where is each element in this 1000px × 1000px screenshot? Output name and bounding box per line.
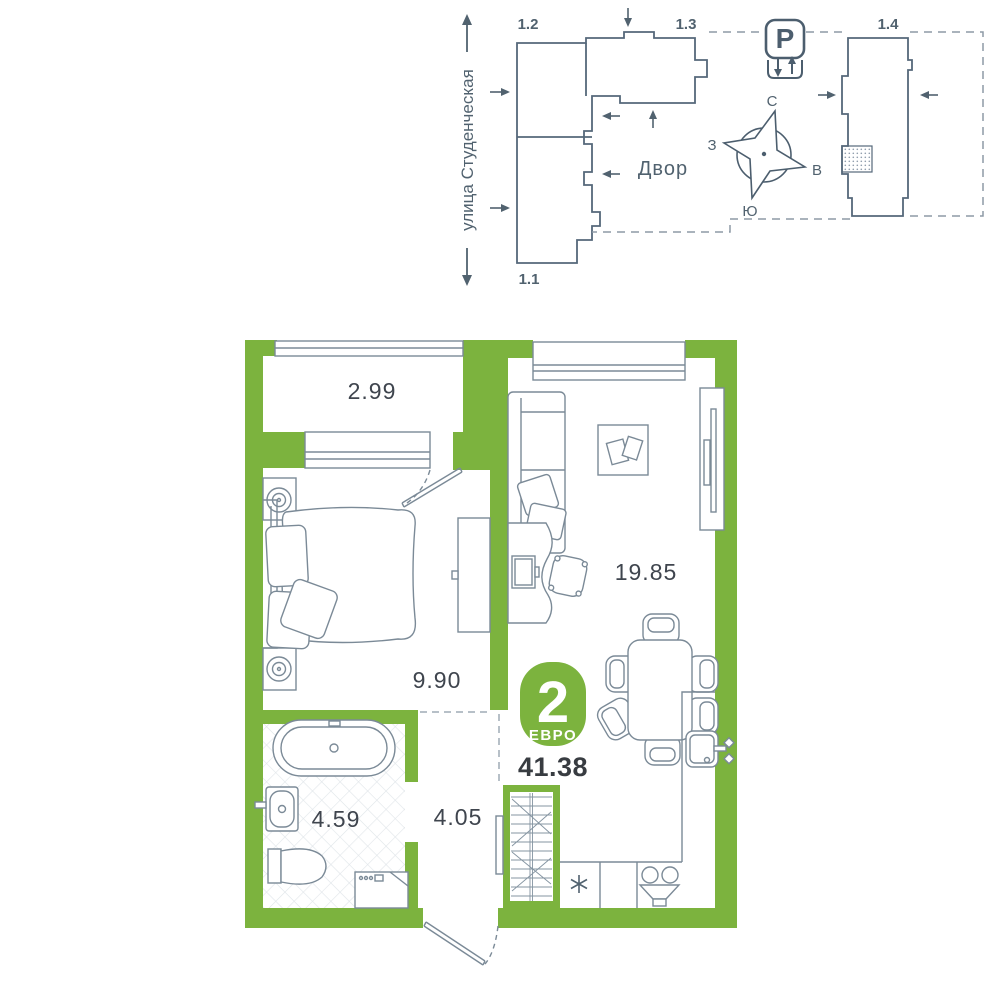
street-arrow-down-icon [462, 275, 472, 286]
street-arrow-up-icon [462, 14, 472, 25]
apartment-location-hatch [842, 146, 872, 172]
bathroom-area-label: 4.59 [312, 806, 361, 832]
closet-interior [510, 792, 553, 901]
compass-south-label: Ю [742, 203, 757, 220]
balcony-area-label: 2.99 [348, 378, 397, 404]
room-count-badge: 2 ЕВРО [520, 662, 586, 746]
courtyard-label: Двор [638, 158, 688, 180]
site-plan: улица Студенческая [458, 8, 983, 288]
desk-icon [508, 523, 552, 623]
floorplan-page: улица Студенческая [0, 0, 1000, 1000]
tv-unit-icon [700, 388, 724, 530]
compass-east-label: В [812, 162, 822, 179]
wardrobe-icon [452, 518, 490, 632]
building-1-3-label: 1.3 [676, 16, 697, 33]
building-1-2-label: 1.2 [518, 16, 539, 33]
fridge-snowflake-icon [571, 875, 587, 893]
toilet-icon [268, 849, 326, 884]
bedroom-furniture [263, 478, 490, 690]
entry-door [424, 922, 498, 965]
total-area-label: 41.38 [518, 752, 588, 782]
living-window [533, 342, 685, 380]
bedroom-window-sill [305, 432, 430, 468]
desk-chair-icon [547, 554, 588, 598]
building-a-outline [517, 32, 707, 263]
apartment-plan: 2.99 9.90 19.85 4.59 4.05 2 ЕВРО 41.38 [245, 340, 737, 965]
nightstand-lamp-icon [263, 648, 296, 690]
openings-dashed [420, 712, 499, 784]
closet-door-panel [496, 816, 503, 874]
building-1-4-label: 1.4 [878, 16, 900, 33]
badge-rooms-label: 2 [537, 670, 569, 735]
compass-west-label: З [707, 137, 716, 154]
tv-icon [711, 409, 716, 512]
washing-machine-icon [355, 872, 408, 908]
compass-north-label: С [767, 93, 778, 110]
hallway-area-label: 4.05 [434, 804, 483, 830]
bed-icon [263, 500, 415, 649]
badge-type-label: ЕВРО [529, 727, 577, 744]
plan-svg: улица Студенческая [0, 0, 1000, 1000]
balcony-door [402, 468, 462, 507]
building-b-outline [842, 38, 912, 216]
parking-icon: P [766, 20, 804, 78]
living-area-label: 19.85 [615, 559, 678, 585]
building-1-1-label: 1.1 [519, 271, 540, 288]
parking-letter: P [776, 23, 795, 54]
compass: С З В Ю [707, 93, 822, 220]
coffee-table-icon [598, 425, 648, 475]
bathtub-icon [273, 720, 395, 776]
street-label: улица Студенческая [458, 69, 477, 231]
bedroom-area-label: 9.90 [413, 667, 462, 693]
stove-icon [640, 867, 679, 906]
